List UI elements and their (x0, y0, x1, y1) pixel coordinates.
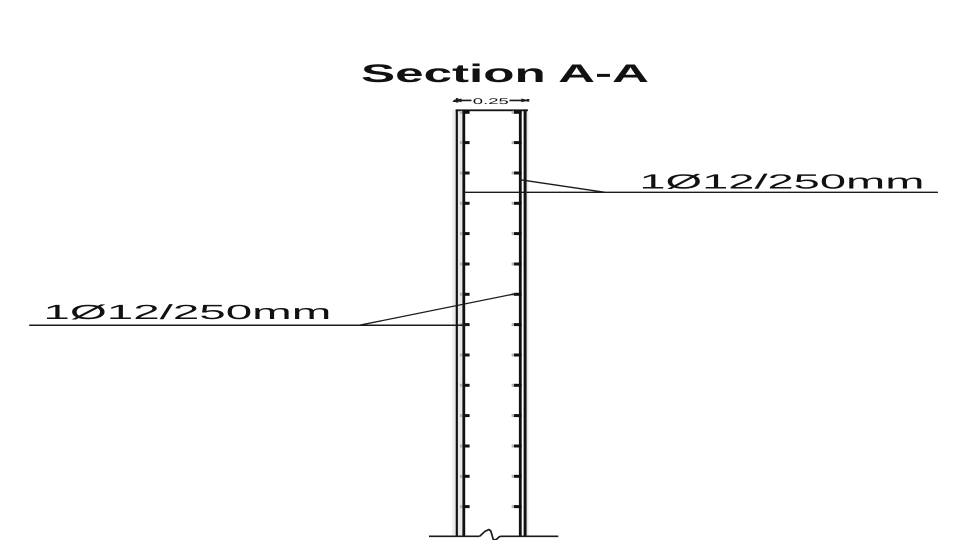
svg-text:0.25: 0.25 (473, 97, 510, 106)
svg-text:1Ø12/250mm: 1Ø12/250mm (639, 171, 924, 194)
svg-text:Section A-A: Section A-A (361, 60, 649, 88)
svg-text:1Ø12/250mm: 1Ø12/250mm (43, 301, 331, 324)
